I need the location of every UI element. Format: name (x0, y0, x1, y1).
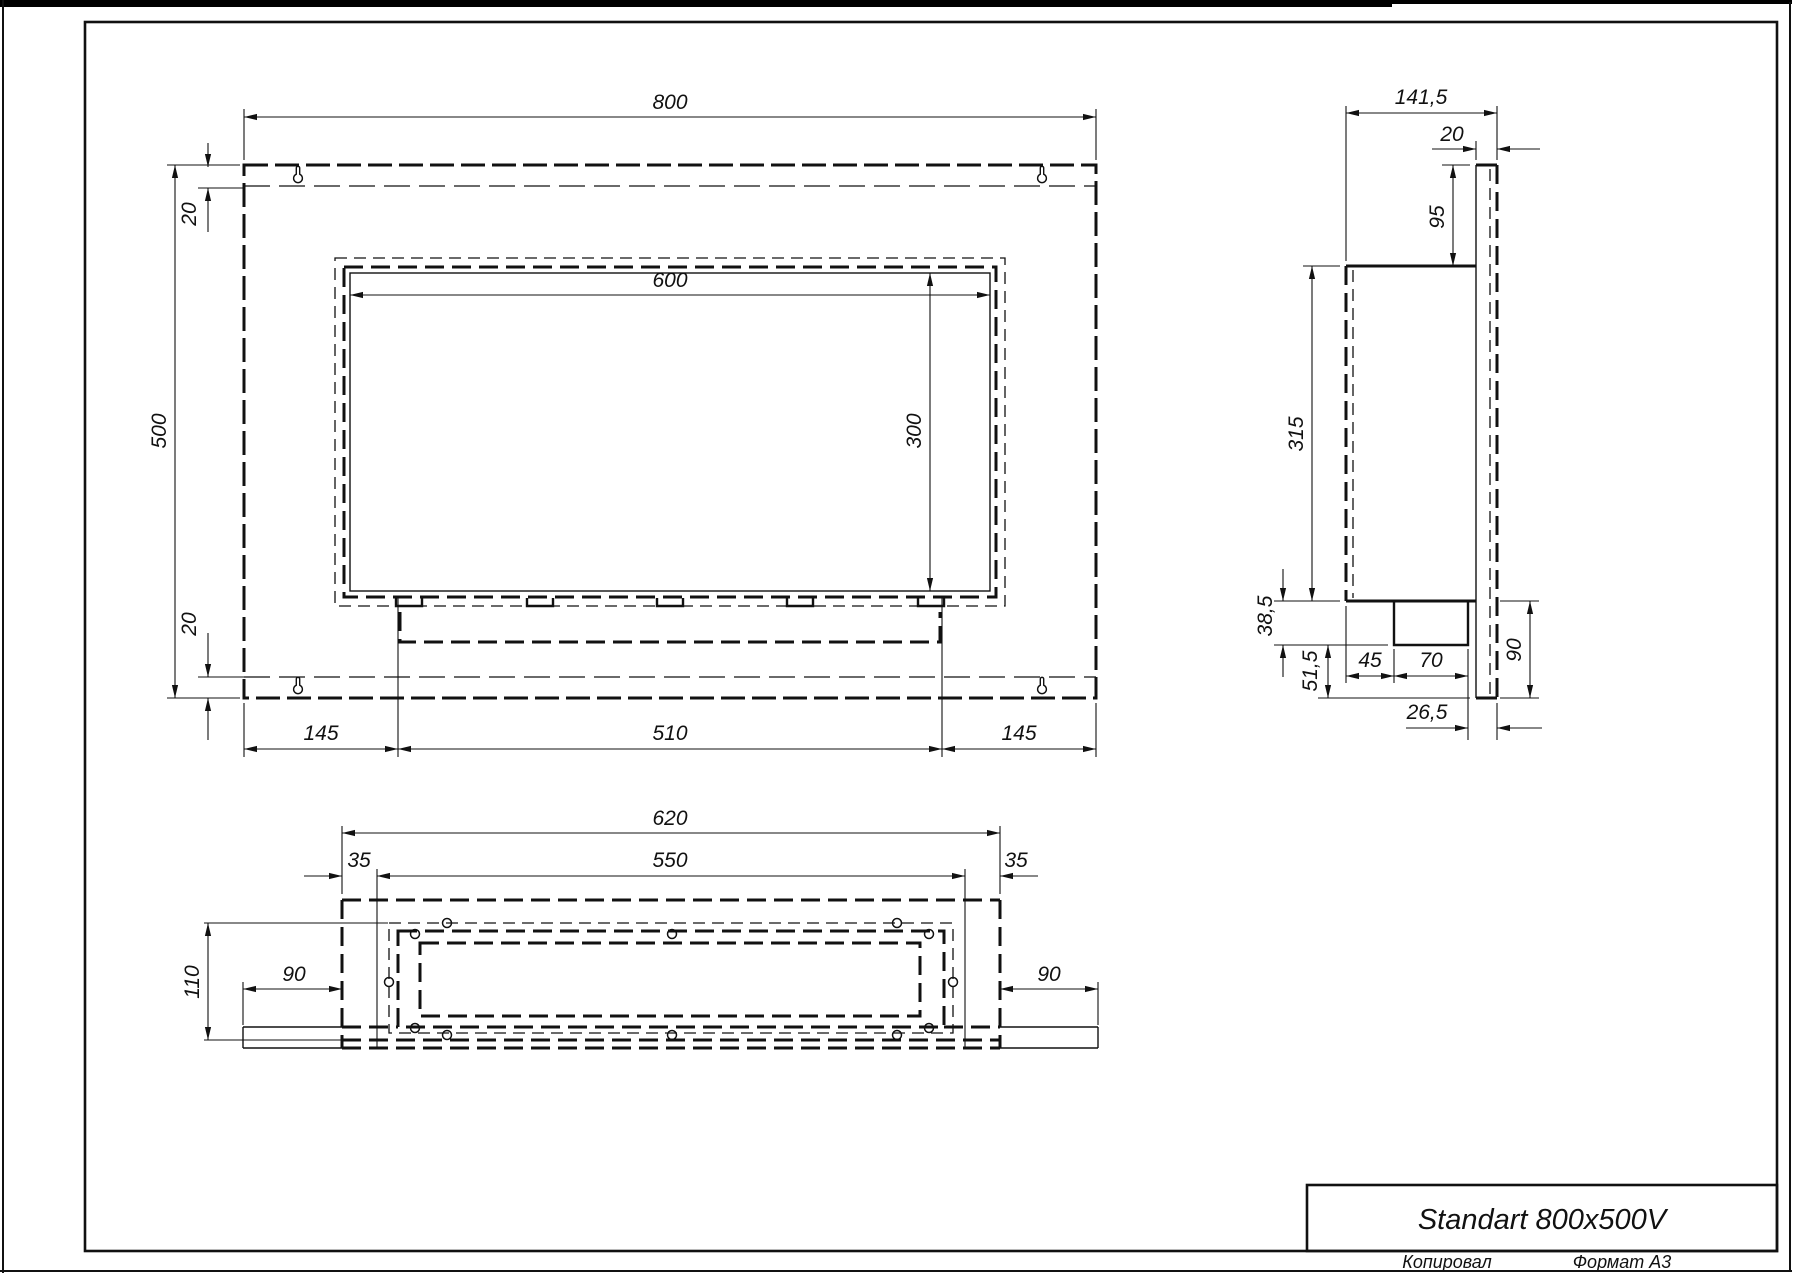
bottom-inner-mid (398, 931, 944, 1027)
dim-below-body: 90 (1503, 638, 1526, 662)
footer-copied-label: Копировал (1402, 1252, 1492, 1272)
dim-tray-to-bottom: 51,5 (1299, 650, 1322, 691)
dim-front-height: 500 (148, 413, 171, 448)
side-view: 141,5 20 95 315 38,5 51,5 (1254, 86, 1542, 740)
dim-opening-height: 300 (903, 413, 926, 448)
dim-opening-width: 600 (652, 269, 687, 292)
dim-left-wing: 90 (282, 963, 306, 986)
bottom-inner-deep (420, 943, 920, 1016)
dim-tray-back-gap: 26,5 (1406, 701, 1448, 724)
drawing-sheet: 800 500 20 20 600 300 (0, 0, 1800, 1273)
dim-tray-front-offset: 45 (1358, 649, 1382, 672)
dim-top-to-body: 95 (1426, 205, 1449, 229)
front-opening-mid-dashed (344, 267, 996, 597)
dim-body-height: 315 (1285, 416, 1308, 451)
dim-right-wing: 90 (1037, 963, 1061, 986)
front-opening-tabs (396, 598, 944, 606)
dim-right-inset: 35 (1004, 849, 1028, 872)
bottom-view: 620 35 550 35 110 90 90 (181, 807, 1098, 1048)
dim-tray-depth: 70 (1419, 649, 1443, 672)
front-tray-hidden (400, 612, 940, 642)
dim-body-depth: 110 (181, 965, 204, 999)
front-view: 800 500 20 20 600 300 (148, 91, 1096, 757)
dim-side-depth: 141,5 (1395, 86, 1448, 109)
footer-format-label: Формат А3 (1573, 1252, 1672, 1272)
dim-front-bottom-strip: 20 (178, 612, 201, 637)
dim-front-width: 800 (652, 91, 687, 114)
dim-bottom-body-width: 620 (652, 807, 687, 830)
sheet-frame (0, 0, 1792, 1273)
dim-tray-left: 145 (303, 722, 338, 745)
title-block: Standart 800x500V Копировал Формат А3 (1307, 1185, 1777, 1272)
dim-tray-width: 510 (652, 722, 687, 745)
engineering-drawing: 800 500 20 20 600 300 (0, 0, 1800, 1273)
dim-tray-right: 145 (1001, 722, 1036, 745)
side-dimensions: 141,5 20 95 315 38,5 51,5 (1254, 86, 1542, 740)
dim-front-top-strip: 20 (178, 202, 201, 227)
drawing-title: Standart 800x500V (1418, 1204, 1669, 1236)
screw-holes (385, 919, 958, 1040)
keyhole-slot-icon (294, 166, 1047, 693)
front-opening (350, 273, 990, 591)
dim-left-inset: 35 (347, 849, 371, 872)
side-tray (1394, 601, 1468, 645)
dim-tray-drop: 38,5 (1254, 595, 1277, 636)
dim-panel-thickness: 20 (1439, 123, 1464, 146)
front-dimensions: 800 500 20 20 600 300 (148, 91, 1096, 757)
drawing-border (85, 22, 1777, 1251)
front-outer-body (244, 165, 1096, 698)
dim-mount-width: 550 (652, 849, 687, 872)
